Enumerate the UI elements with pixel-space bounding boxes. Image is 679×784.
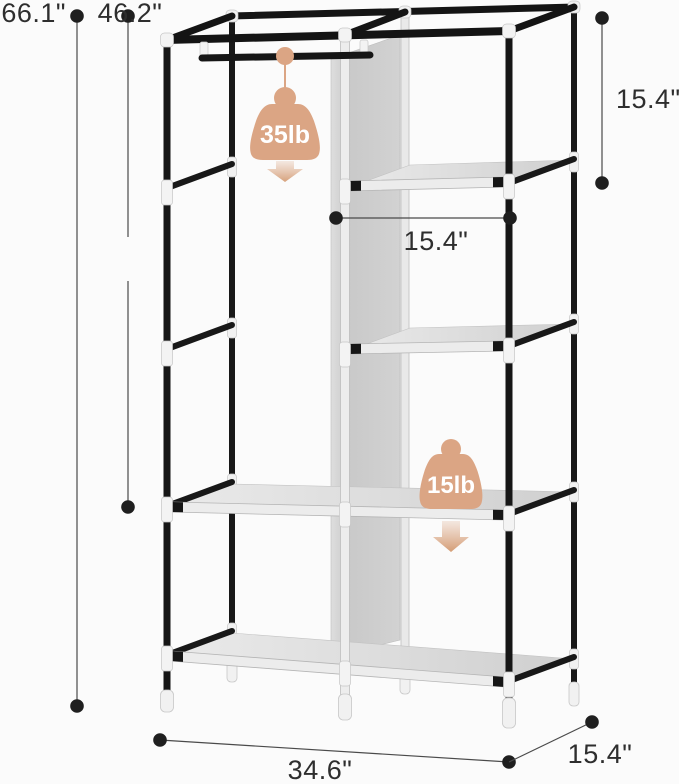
dimension-label-depth: 15.4"	[563, 741, 637, 768]
dimension-hanging-height	[121, 9, 135, 514]
dimension-top-section	[595, 11, 609, 190]
dimension-label-total-width: 34.6"	[286, 757, 354, 784]
dimension-endpoint-dot	[153, 733, 167, 747]
front-right-foot	[503, 698, 516, 728]
weight-badge-shelf: 15lb	[420, 439, 483, 552]
dimension-total-height	[70, 9, 84, 713]
rack-illustration: 35lb 15lb	[0, 0, 679, 784]
dimension-label-shelf-width: 15.4"	[402, 228, 470, 255]
weight-badge-hanging-rod: 35lb	[250, 47, 320, 182]
front-top-bar	[166, 31, 510, 40]
left-side-bar-1	[167, 164, 232, 188]
dimension-endpoint-dot	[503, 211, 517, 225]
dimension-endpoint-dot	[585, 715, 599, 729]
dimension-label-total-height: 66.1"	[0, 0, 66, 27]
dimension-label-top-section: 15.4"	[616, 86, 679, 113]
dimension-endpoint-dot	[70, 9, 84, 23]
dimension-label-hanging-height: 46.2"	[96, 0, 164, 27]
diagram-canvas: 35lb 15lb	[0, 0, 679, 784]
down-arrow-icon	[433, 521, 469, 552]
dimension-endpoint-dot	[70, 699, 84, 713]
weight-hook-icon	[276, 47, 294, 65]
down-arrow-icon	[267, 161, 303, 182]
dimension-endpoint-dot	[329, 211, 343, 225]
left-side-bar-2	[167, 325, 232, 349]
front-middle-foot	[339, 694, 352, 720]
weight-capacity-label: 35lb	[260, 121, 310, 149]
front-left-foot	[161, 690, 174, 712]
dimension-endpoint-dot	[595, 176, 609, 190]
weight-capacity-label: 15lb	[427, 472, 475, 499]
back-right-foot	[569, 682, 579, 706]
dimension-endpoint-dot	[595, 11, 609, 25]
dimension-endpoint-dot	[121, 500, 135, 514]
